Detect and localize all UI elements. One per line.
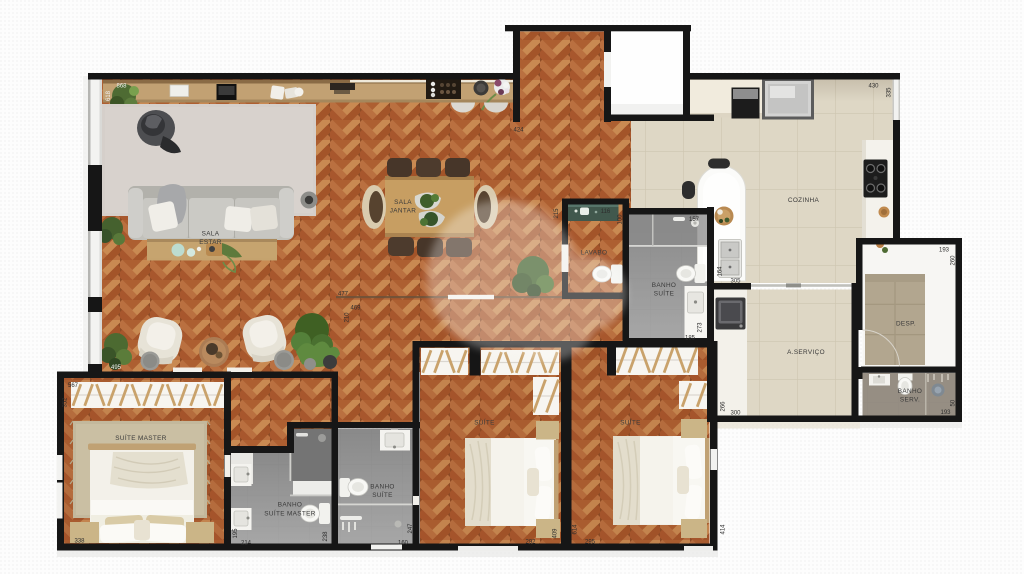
svg-text:SUÍTE: SUÍTE xyxy=(620,418,641,427)
svg-text:COZINHA: COZINHA xyxy=(788,197,820,204)
svg-text:SERV.: SERV. xyxy=(900,397,920,404)
svg-text:BANHO: BANHO xyxy=(652,282,676,289)
svg-text:260: 260 xyxy=(951,255,957,266)
svg-text:SUÍTE MASTER: SUÍTE MASTER xyxy=(264,509,315,518)
svg-text:477: 477 xyxy=(338,292,349,298)
svg-text:335: 335 xyxy=(887,87,893,98)
svg-text:JANTAR: JANTAR xyxy=(390,208,417,215)
svg-text:SUÍTE MASTER: SUÍTE MASTER xyxy=(115,433,166,442)
svg-text:ESTAR: ESTAR xyxy=(199,239,222,246)
svg-text:SUÍTE: SUÍTE xyxy=(372,490,393,499)
svg-text:495: 495 xyxy=(111,365,122,371)
svg-text:567: 567 xyxy=(68,383,79,389)
svg-text:292: 292 xyxy=(525,540,536,546)
svg-text:100: 100 xyxy=(618,214,624,225)
svg-text:BANHO: BANHO xyxy=(278,502,302,509)
svg-text:195: 195 xyxy=(233,528,239,539)
svg-text:338: 338 xyxy=(74,539,85,545)
svg-text:160: 160 xyxy=(398,541,409,547)
svg-text:247: 247 xyxy=(408,523,414,534)
svg-text:469: 469 xyxy=(350,306,361,312)
svg-text:430: 430 xyxy=(868,84,879,90)
svg-text:50: 50 xyxy=(951,399,957,406)
svg-text:DESP.: DESP. xyxy=(896,321,916,328)
svg-text:116: 116 xyxy=(601,209,611,215)
svg-text:618: 618 xyxy=(106,90,112,101)
svg-text:SALA: SALA xyxy=(202,231,220,238)
svg-text:238: 238 xyxy=(323,531,329,542)
svg-text:266: 266 xyxy=(721,401,727,412)
svg-text:BANHO: BANHO xyxy=(370,484,394,491)
svg-text:424: 424 xyxy=(513,128,524,134)
svg-text:BANHO: BANHO xyxy=(898,388,922,395)
svg-text:614: 614 xyxy=(573,524,579,535)
svg-text:SALA: SALA xyxy=(394,199,412,206)
svg-text:215: 215 xyxy=(554,208,560,219)
svg-text:273: 273 xyxy=(698,322,704,333)
svg-text:193: 193 xyxy=(939,248,950,254)
svg-text:193: 193 xyxy=(940,410,951,416)
svg-text:868: 868 xyxy=(116,84,127,90)
svg-text:157: 157 xyxy=(689,217,700,223)
svg-text:300: 300 xyxy=(730,411,741,417)
svg-text:164: 164 xyxy=(718,266,724,277)
svg-text:414: 414 xyxy=(721,524,727,535)
svg-text:210: 210 xyxy=(345,312,351,323)
svg-text:305: 305 xyxy=(730,279,741,285)
svg-text:214: 214 xyxy=(241,541,252,547)
svg-text:A.SERVIÇO: A.SERVIÇO xyxy=(787,349,825,356)
svg-text:SUÍTE: SUÍTE xyxy=(474,418,495,427)
svg-text:295: 295 xyxy=(585,540,596,546)
svg-text:SUÍTE: SUÍTE xyxy=(654,289,675,298)
svg-text:352: 352 xyxy=(63,397,69,408)
svg-text:185: 185 xyxy=(685,336,696,342)
svg-text:409: 409 xyxy=(553,528,559,539)
